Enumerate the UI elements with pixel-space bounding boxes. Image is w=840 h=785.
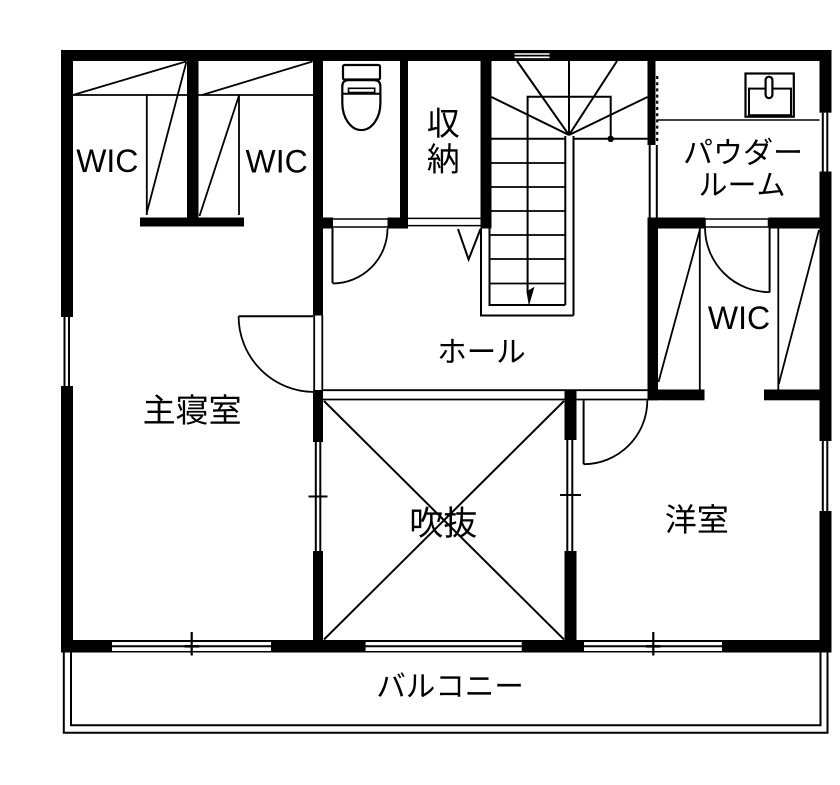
svg-text:WIC: WIC: [245, 144, 307, 180]
svg-text:WIC: WIC: [708, 300, 770, 336]
svg-text:WIC: WIC: [76, 143, 138, 179]
